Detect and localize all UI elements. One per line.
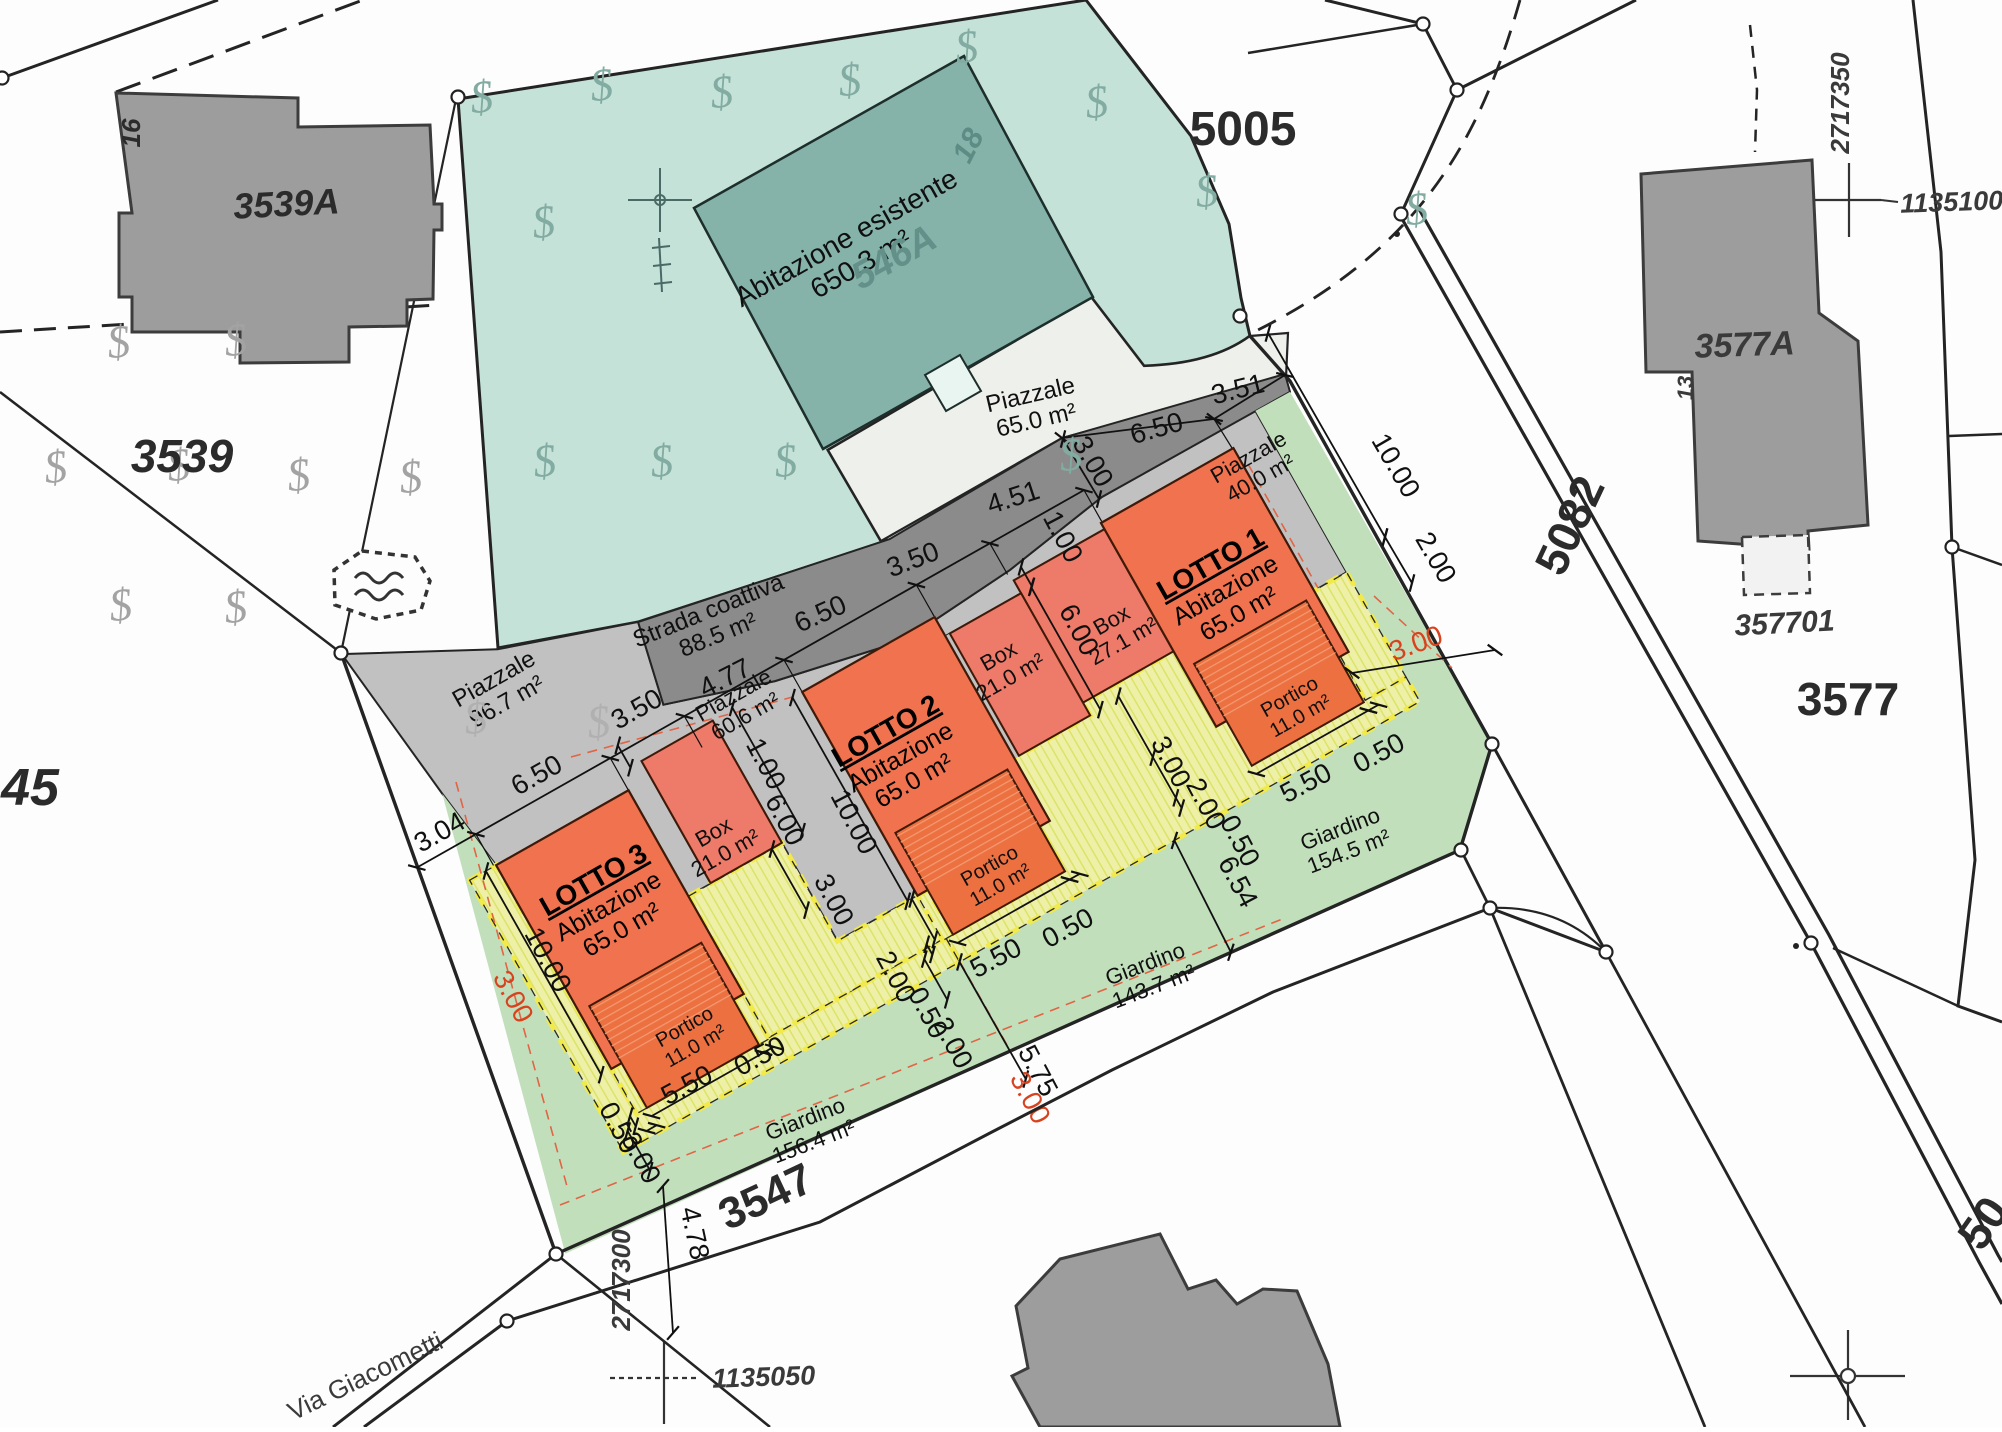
svg-text:16: 16 (116, 118, 146, 147)
svg-text:3577A: 3577A (1694, 324, 1795, 365)
svg-text:5005: 5005 (1190, 103, 1297, 156)
svg-text:357701: 357701 (1734, 604, 1836, 642)
svg-text:1135100: 1135100 (1900, 185, 2002, 219)
svg-text:45: 45 (0, 759, 60, 817)
svg-text:1135050: 1135050 (712, 1360, 816, 1394)
svg-text:2717350: 2717350 (1825, 52, 1855, 155)
svg-text:3539A: 3539A (232, 180, 340, 226)
svg-text:3539: 3539 (131, 430, 234, 482)
svg-text:13: 13 (1673, 376, 1698, 400)
svg-text:3577: 3577 (1797, 673, 1899, 725)
svg-text:2717300: 2717300 (606, 1229, 636, 1332)
